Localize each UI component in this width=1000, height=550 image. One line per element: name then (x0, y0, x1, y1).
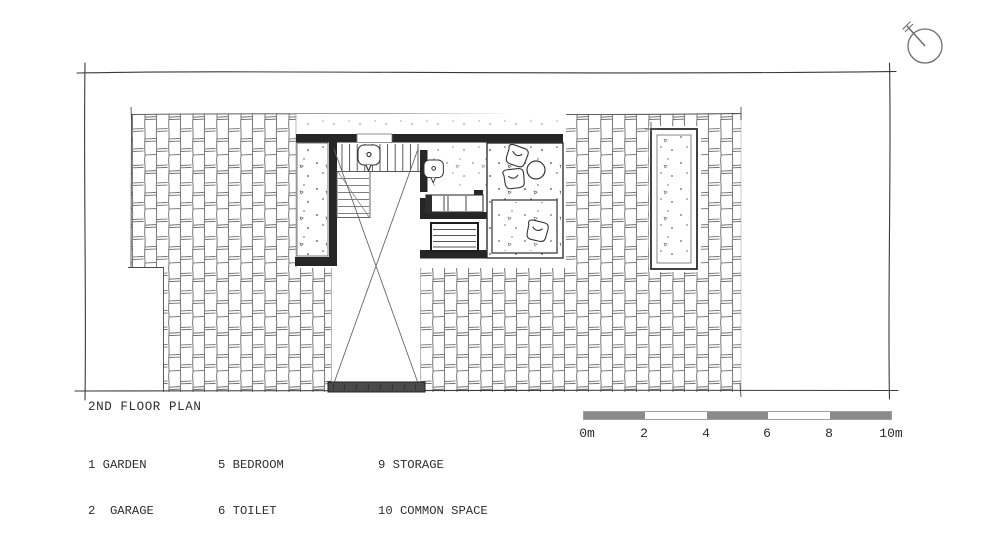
scale-bar-segment (584, 412, 645, 419)
balcony (645, 122, 697, 269)
page: 2ND FLOOR PLAN 1 GARDEN 2 GARAGE 3 LIVIN… (0, 0, 1000, 550)
legend-item: 6 TOILET (218, 504, 328, 519)
working-desk (431, 223, 478, 251)
scale-label: 0m (579, 426, 595, 441)
scale-label: 8 (825, 426, 833, 441)
scale-label: 4 (702, 426, 710, 441)
round-table (527, 161, 545, 179)
left-wing-room (297, 143, 328, 256)
page-title: 2ND FLOOR PLAN (88, 400, 201, 414)
legend-column-3: 9 STORAGE 10 COMMON SPACE 11 MOON SEEING (378, 428, 488, 550)
legend-column-2: 5 BEDROOM 6 TOILET 7 WORKSHIP AREA 8 WOR… (218, 428, 328, 550)
scale-label: 2 (640, 426, 648, 441)
scale-label: 10m (879, 426, 902, 441)
legend-item: 5 BEDROOM (218, 458, 328, 473)
common-space (487, 143, 563, 258)
shelf (426, 195, 483, 212)
legend-column-1: 1 GARDEN 2 GARAGE 3 LIVING ROOM 4 KITCHE… (88, 428, 183, 550)
chair-icon (526, 220, 549, 242)
void-edge-band (328, 382, 425, 392)
floor-texture (300, 116, 560, 132)
legend-item: 1 GARDEN (88, 458, 183, 473)
scale-bar-segment (645, 412, 706, 419)
north-arrow-icon (903, 22, 943, 64)
legend-item: 9 STORAGE (378, 458, 488, 473)
stair-landing-opening (357, 134, 392, 143)
scale-bar-segment (707, 412, 768, 419)
scale-bar (583, 411, 892, 420)
scale-bar-segment (830, 412, 891, 419)
scale-label: 6 (763, 426, 771, 441)
scale-bar-segment (768, 412, 829, 419)
legend-item: 10 COMMON SPACE (378, 504, 488, 519)
legend-item: 2 GARAGE (88, 504, 183, 519)
